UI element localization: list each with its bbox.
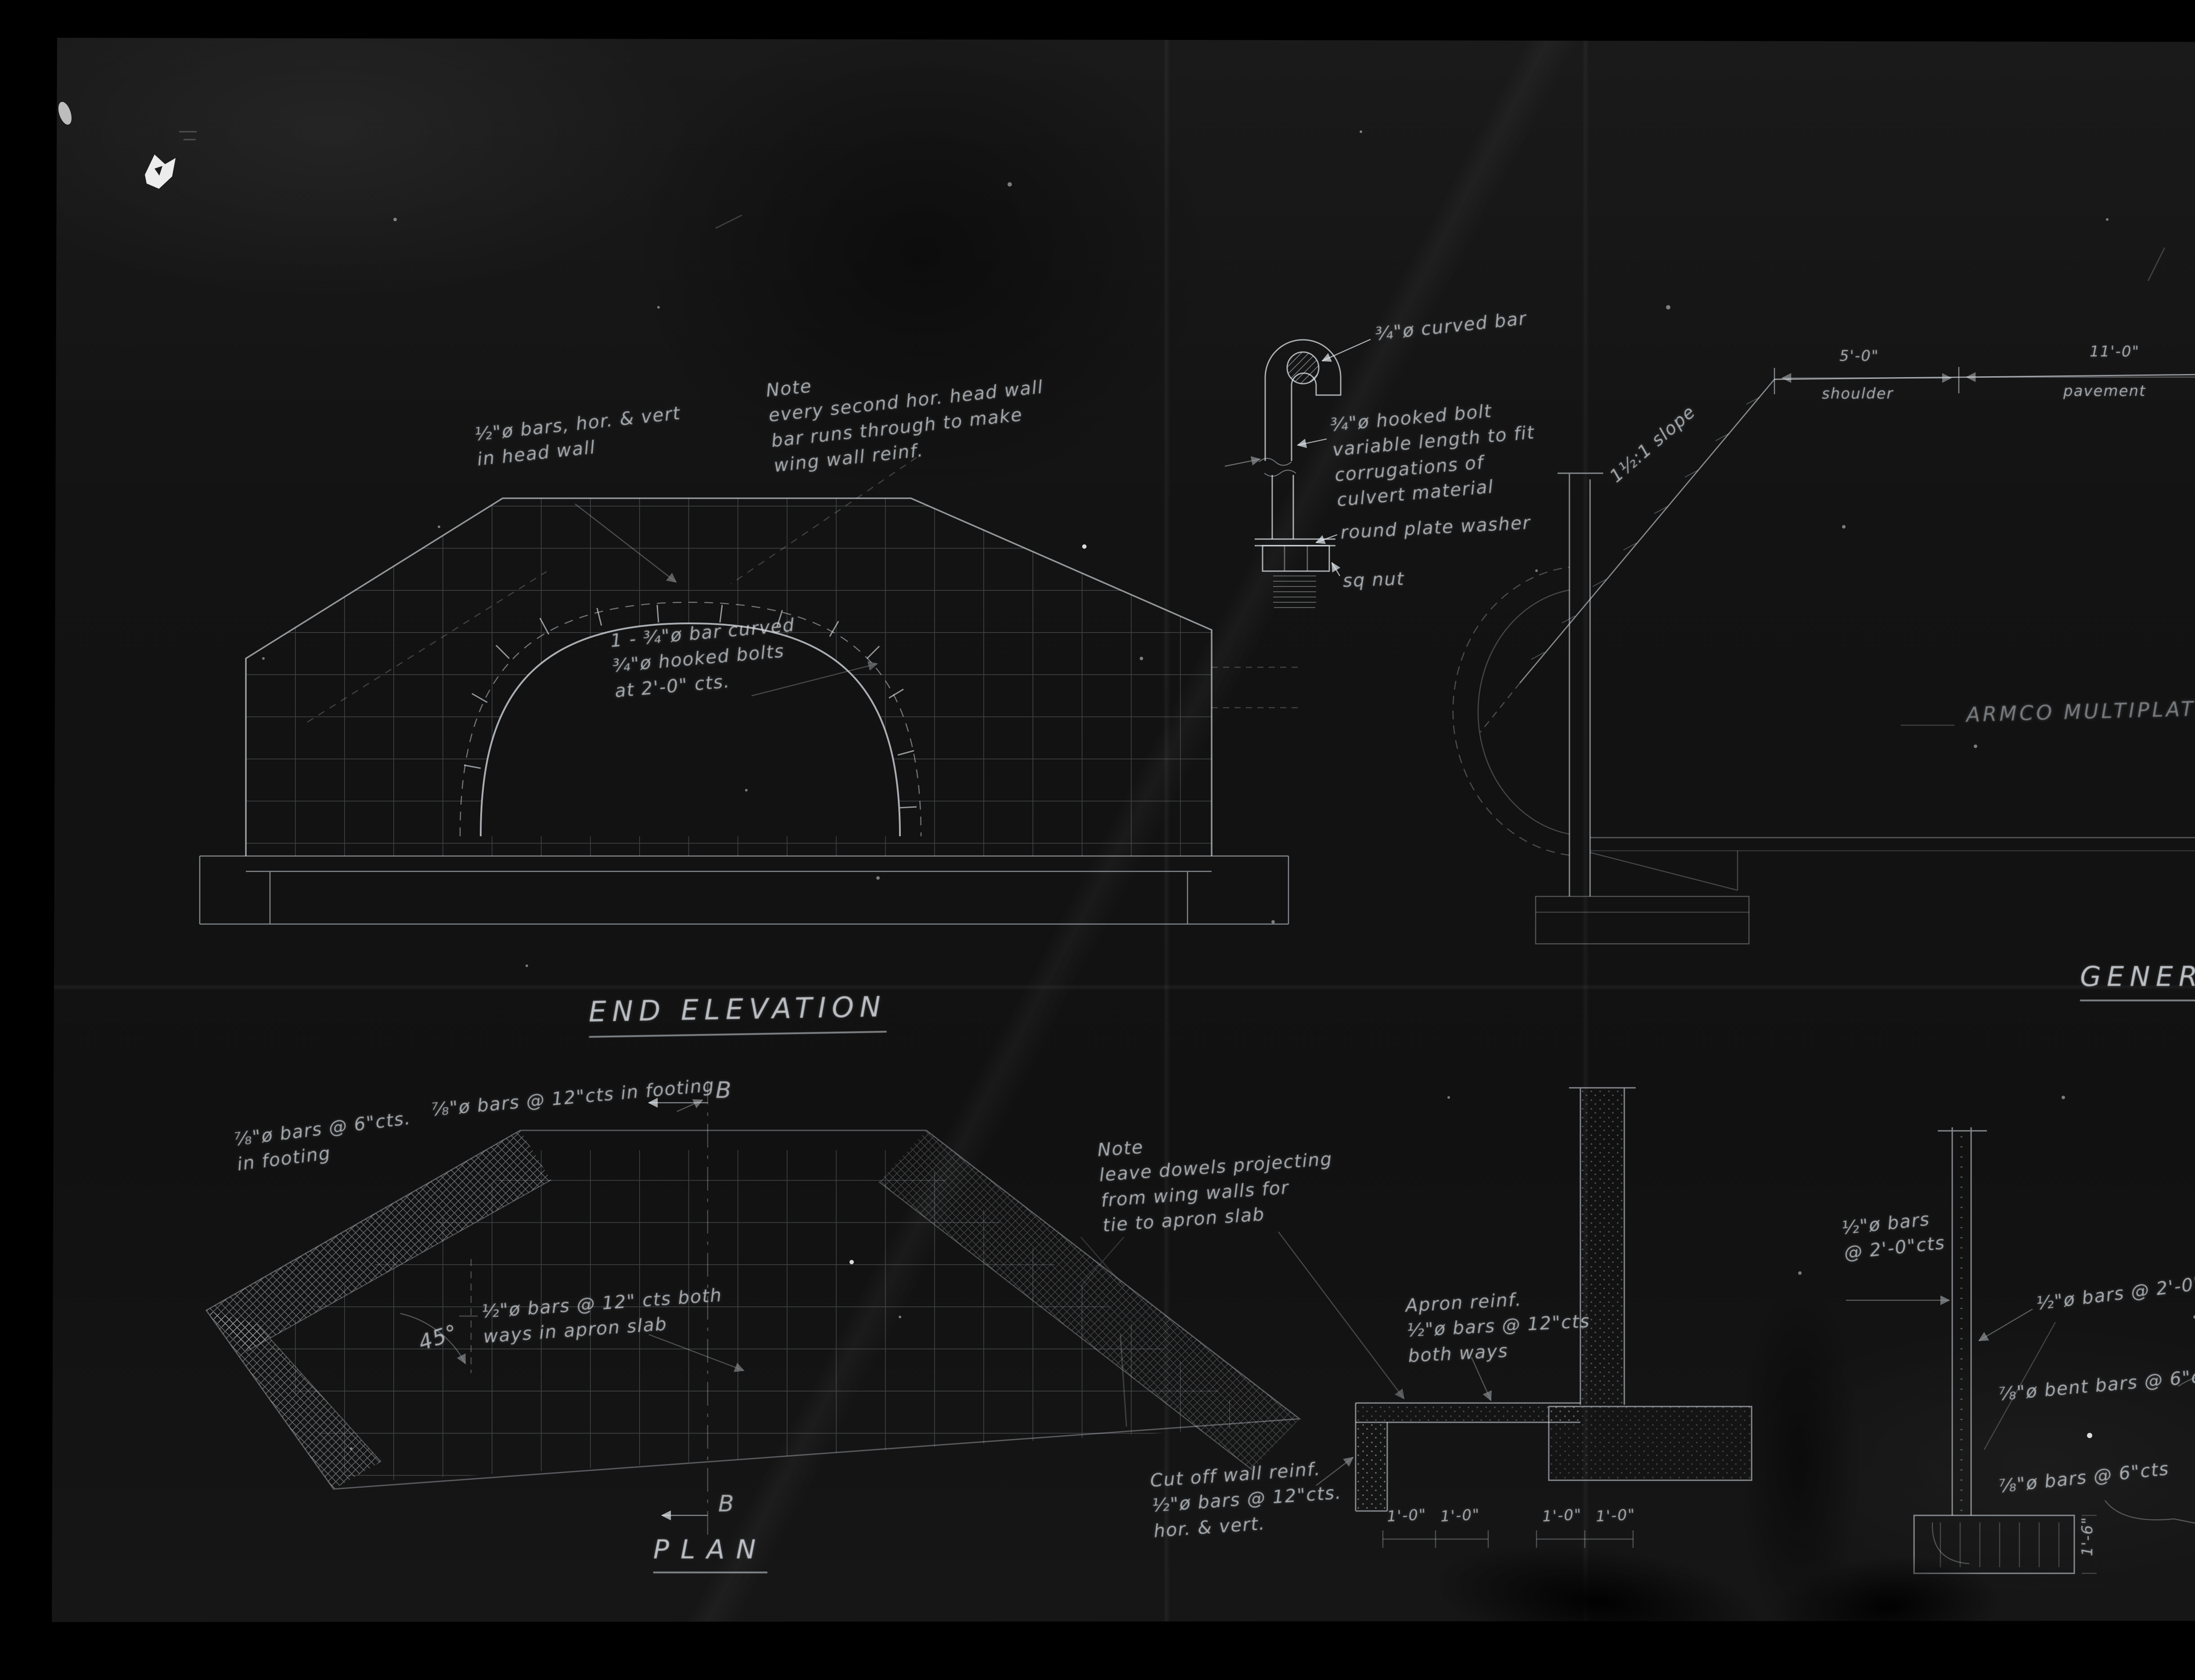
apron-bars-label: ½"ø bars @ 12" cts both ways in apron sl… bbox=[481, 1283, 725, 1350]
apron-reinf-label: Apron reinf. ½"ø bars @ 12"cts both ways bbox=[1405, 1284, 1592, 1369]
cutoff-reinf-label: Cut off wall reinf. ½"ø bars @ 12"cts. h… bbox=[1149, 1455, 1344, 1544]
slope-label: 1½:1 slope bbox=[1605, 400, 1701, 488]
section-b-bottom: B bbox=[718, 1488, 735, 1520]
dim-3: 1'-0" bbox=[1542, 1504, 1583, 1527]
armco-label: ARMCO MULTIPLATE PIPE ARCH CU bbox=[1966, 689, 2195, 729]
angle-label: 45° bbox=[415, 1318, 462, 1358]
footing-bars-12-label: ⅞"ø bars @ 12"cts in footing bbox=[430, 1073, 716, 1123]
bars-left-label: ½"ø bars @ 2'-0"cts bbox=[1840, 1205, 1947, 1266]
shoulder-dim: 5'-0" bbox=[1839, 346, 1879, 367]
note-arch-bar: 1 - ¾"ø bar curved ¾"ø hooked bolts at 2… bbox=[609, 612, 800, 704]
pavement-dim: 11'-0" bbox=[2090, 342, 2140, 363]
label-washer: round plate washer bbox=[1340, 510, 1531, 545]
bars-6-label: ⅞"ø bars @ 6"cts bbox=[1997, 1456, 2170, 1499]
pavement-label: pavement bbox=[2063, 381, 2146, 402]
label-hooked-bolt: ¾"ø hooked bolt variable length to fit c… bbox=[1329, 395, 1540, 513]
note-dowels: Note leave dowels projecting from wing w… bbox=[1097, 1122, 1337, 1238]
shoulder-label: shoulder bbox=[1822, 384, 1894, 405]
height-dim-label: 1'-6" bbox=[2077, 1516, 2098, 1556]
dim-4: 1'-0" bbox=[1595, 1504, 1636, 1527]
annotation-overlay: ½"ø bars, hor. & vert in head wall Note … bbox=[0, 0, 2195, 1658]
note-headwall-bars: ½"ø bars, hor. & vert in head wall bbox=[473, 401, 684, 472]
dim-1: 1'-0" bbox=[1386, 1504, 1427, 1527]
microfilm-scan: { "drawing": { "end_elevation": { "title… bbox=[0, 0, 2195, 1658]
footing-bars-6-label: ⅞"ø bars @ 6"cts. in footing bbox=[233, 1106, 415, 1177]
bent-bars-label: ⅞"ø bent bars @ 6"cts bbox=[1997, 1363, 2195, 1407]
section-b-top: B bbox=[716, 1075, 732, 1107]
plan-title: PLAN bbox=[653, 1531, 767, 1573]
bars-right-label: ½"ø bars @ 2'-0" cts bbox=[2035, 1267, 2195, 1317]
label-curved-bar: ¾"ø curved bar bbox=[1374, 306, 1528, 347]
end-elevation-title: END ELEVATION bbox=[588, 988, 887, 1037]
ink-smudge bbox=[1765, 1544, 2011, 1669]
film-sheet: ½"ø bars, hor. & vert in head wall Note … bbox=[48, 35, 2195, 1622]
label-nut: sq nut bbox=[1342, 566, 1405, 594]
general-elevation-title: GENERAL ELEVAT bbox=[2080, 958, 2195, 1001]
dim-2: 1'-0" bbox=[1440, 1504, 1481, 1527]
note-second-bar: Note every second hor. head wall bar run… bbox=[765, 349, 1050, 478]
